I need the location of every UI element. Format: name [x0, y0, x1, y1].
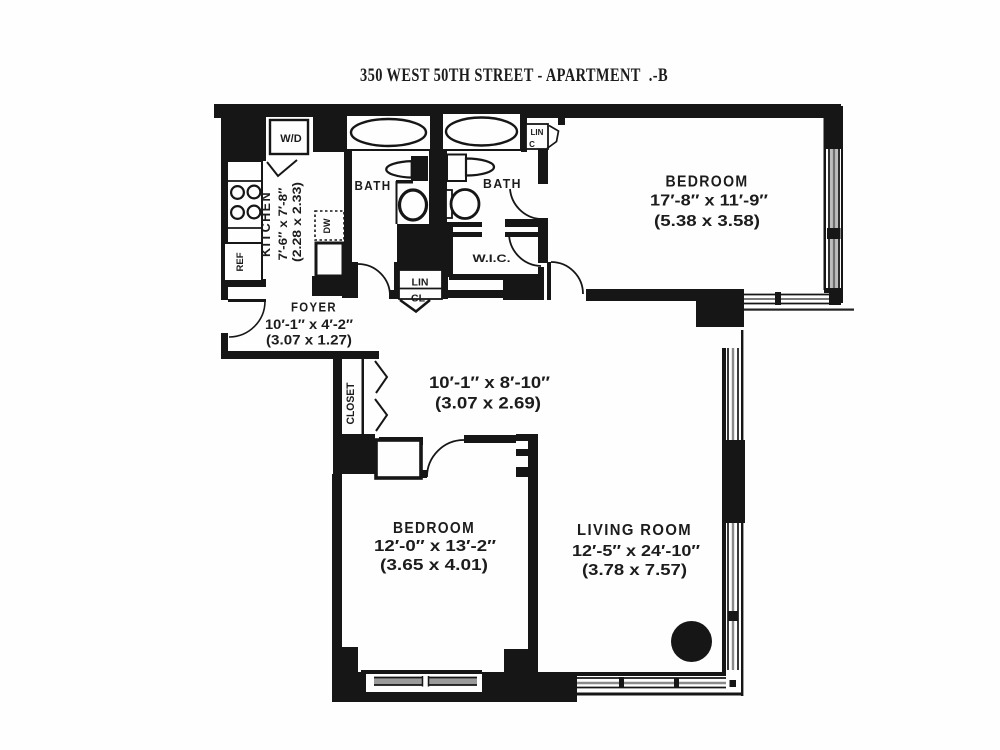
svg-text:KITCHEN: KITCHEN	[258, 191, 273, 257]
svg-text:12′-0″ x 13′-2″: 12′-0″ x 13′-2″	[374, 538, 496, 555]
svg-text:LIVING ROOM: LIVING ROOM	[577, 522, 692, 539]
svg-text:LIN: LIN	[531, 128, 544, 137]
svg-text:W.I.C.: W.I.C.	[473, 253, 511, 265]
svg-text:REF: REF	[235, 252, 246, 271]
svg-text:10′-1″ x 4′-2″: 10′-1″ x 4′-2″	[265, 317, 354, 332]
svg-text:LIN: LIN	[412, 277, 429, 289]
svg-text:BATH: BATH	[483, 177, 522, 191]
svg-text:W/D: W/D	[280, 133, 301, 145]
svg-text:(2.28 x 2.33): (2.28 x 2.33)	[290, 182, 304, 262]
svg-text:10′-1″ x 8′-10″: 10′-1″ x 8′-10″	[429, 374, 550, 392]
svg-text:FOYER: FOYER	[291, 301, 337, 315]
svg-text:CL: CL	[411, 293, 426, 305]
svg-text:DW: DW	[322, 218, 332, 233]
svg-text:350 WEST 50TH STREET - APARTME: 350 WEST 50TH STREET - APARTMENT .-B	[360, 65, 668, 86]
svg-text:12′-5″ x 24′-10″: 12′-5″ x 24′-10″	[572, 543, 700, 560]
svg-text:BEDROOM: BEDROOM	[393, 520, 475, 537]
svg-text:(3.78 x 7.57): (3.78 x 7.57)	[582, 562, 687, 579]
svg-text:7′-6″ x 7′-8″: 7′-6″ x 7′-8″	[276, 187, 290, 260]
svg-text:C: C	[529, 140, 535, 149]
svg-text:(3.65 x 4.01): (3.65 x 4.01)	[380, 557, 488, 574]
svg-text:CLOSET: CLOSET	[345, 382, 357, 424]
svg-text:BATH: BATH	[355, 179, 392, 193]
svg-text:(3.07 x 2.69): (3.07 x 2.69)	[435, 395, 541, 413]
svg-text:(3.07 x 1.27): (3.07 x 1.27)	[266, 333, 352, 348]
svg-text:(5.38 x 3.58): (5.38 x 3.58)	[654, 213, 760, 230]
svg-text:17′-8″ x 11′-9″: 17′-8″ x 11′-9″	[650, 193, 768, 210]
svg-text:BEDROOM: BEDROOM	[666, 174, 749, 191]
